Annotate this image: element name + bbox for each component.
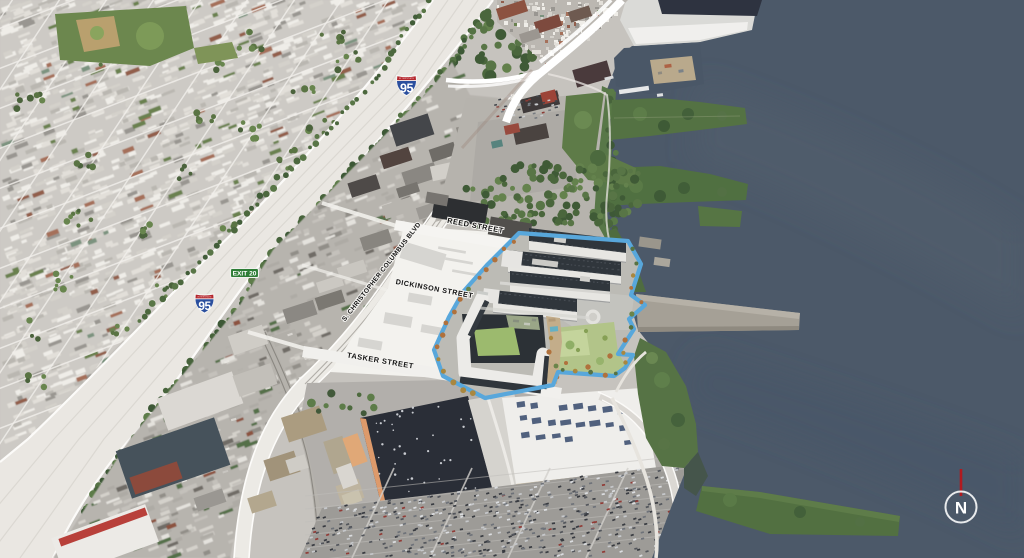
svg-text:95: 95	[400, 82, 413, 96]
svg-text:95: 95	[198, 299, 211, 313]
svg-text:INTERSTATE: INTERSTATE	[197, 295, 212, 298]
svg-text:N: N	[955, 499, 967, 518]
svg-text:INTERSTATE: INTERSTATE	[399, 77, 415, 80]
svg-text:EXIT 20: EXIT 20	[233, 271, 257, 278]
